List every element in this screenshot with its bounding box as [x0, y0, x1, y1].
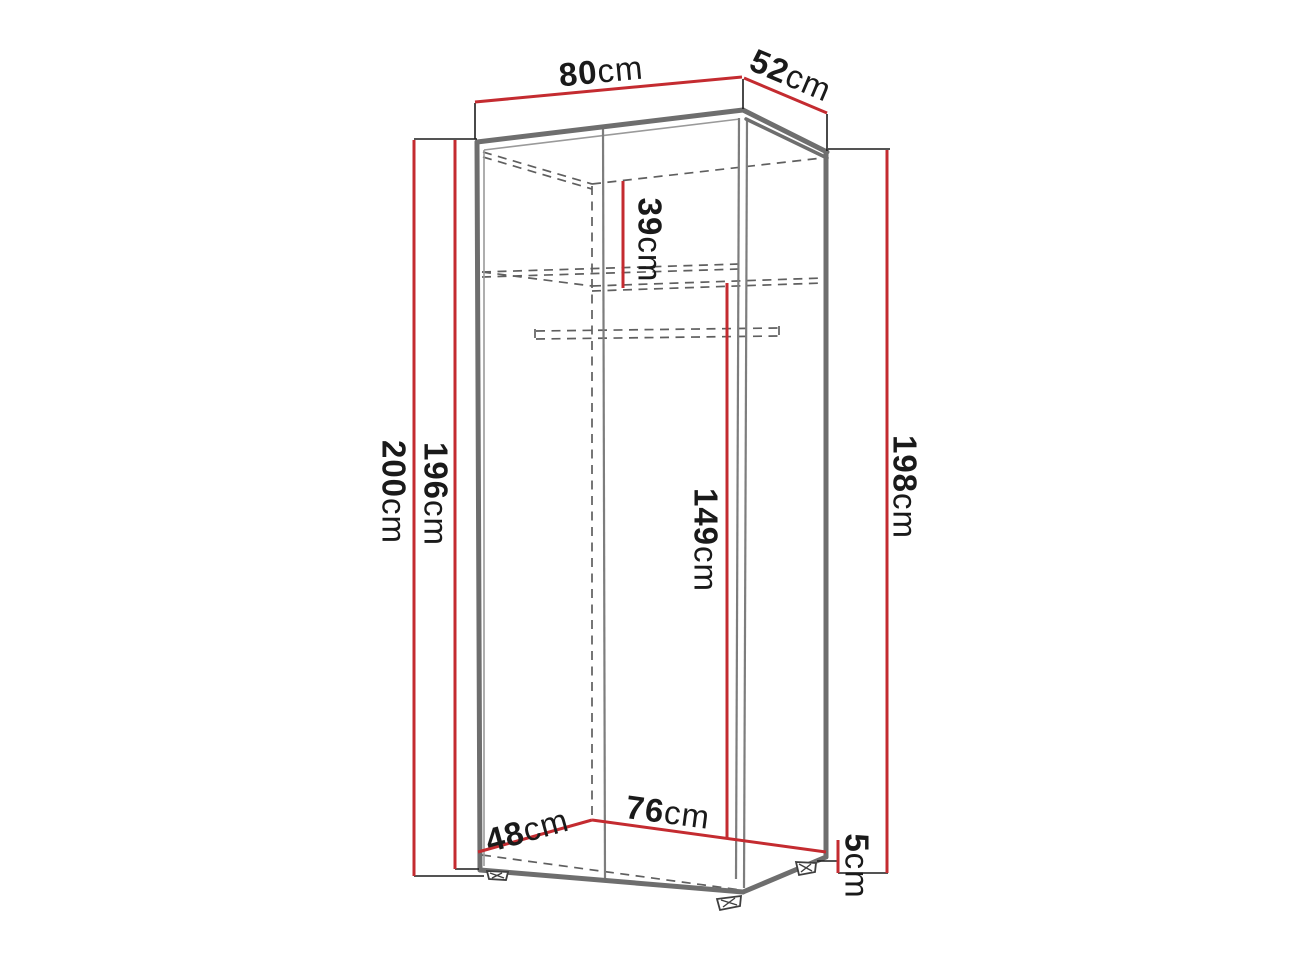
dim-label-height-right: 198cm	[889, 435, 922, 539]
dim-label-hanging-space: 149cm	[690, 488, 723, 592]
dim-label-width-top: 80cm	[557, 51, 644, 92]
top-right-edge	[743, 110, 827, 152]
front-left-edge	[477, 142, 480, 870]
dim-label-height-body: 196cm	[420, 442, 453, 546]
foot-back-right	[796, 862, 816, 875]
dim-label-height-total: 200cm	[378, 440, 411, 544]
foot-front-left	[487, 871, 508, 880]
foot-front-right	[717, 896, 741, 910]
dim-label-top-section: 39cm	[634, 198, 667, 283]
door-divider-line	[603, 127, 605, 881]
side-front-edge	[744, 121, 747, 888]
top-right-inner-edge	[746, 119, 827, 158]
hanging-rail-dashed	[535, 326, 779, 341]
top-front-edge	[477, 110, 743, 142]
dim-label-feet-height: 5cm	[841, 833, 874, 898]
diagram-canvas: 80cm 52cm 200cm 196cm 198cm 39cm 149cm 4…	[0, 0, 1289, 967]
front-right-edge	[736, 118, 739, 879]
